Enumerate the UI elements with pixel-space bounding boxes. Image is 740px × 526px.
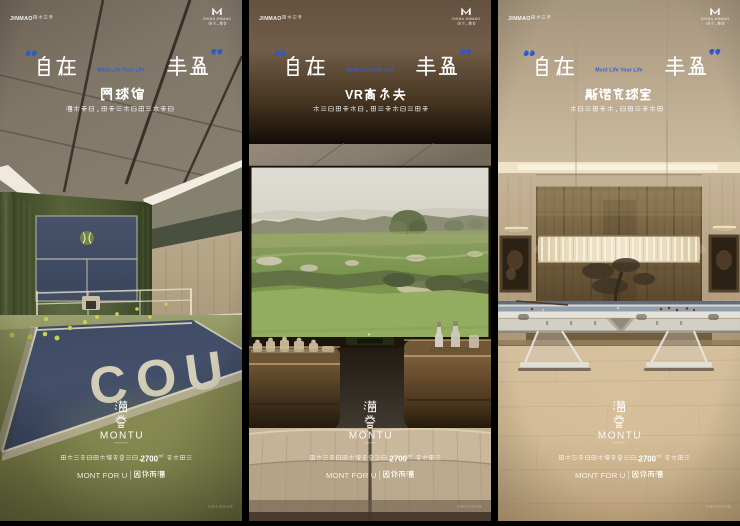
svg-text:Mont Life Your Life: Mont Life Your Life	[346, 68, 394, 74]
svg-text:JINMAO: JINMAO	[259, 16, 282, 22]
svg-text:MONT FOR U: MONT FOR U	[326, 471, 377, 480]
svg-text:2700: 2700	[639, 455, 657, 464]
svg-text:MONT FOR U: MONT FOR U	[77, 471, 128, 480]
svg-text:Mont Life Your Life: Mont Life Your Life	[595, 68, 643, 74]
svg-text:CHINA JINMAO: CHINA JINMAO	[203, 17, 232, 21]
svg-text:JINMAO: JINMAO	[10, 16, 33, 22]
svg-text:MONT FOR U: MONT FOR U	[575, 471, 626, 480]
svg-text:CHINA JINMAO: CHINA JINMAO	[701, 17, 730, 21]
svg-text:VR: VR	[345, 88, 363, 102]
svg-text:2700: 2700	[390, 455, 408, 464]
svg-text:MONTU: MONTU	[100, 431, 144, 442]
svg-text:MONTU: MONTU	[598, 431, 642, 442]
svg-text:m²: m²	[408, 454, 414, 459]
svg-text:CHINA JINMAO: CHINA JINMAO	[452, 17, 481, 21]
svg-text:m²: m²	[657, 454, 663, 459]
svg-text:2700: 2700	[141, 455, 159, 464]
svg-text:MONTU: MONTU	[349, 431, 393, 442]
svg-text:JINMAO: JINMAO	[508, 16, 531, 22]
svg-text:m²: m²	[159, 454, 165, 459]
svg-text:Mont Life Your Life: Mont Life Your Life	[97, 68, 145, 74]
